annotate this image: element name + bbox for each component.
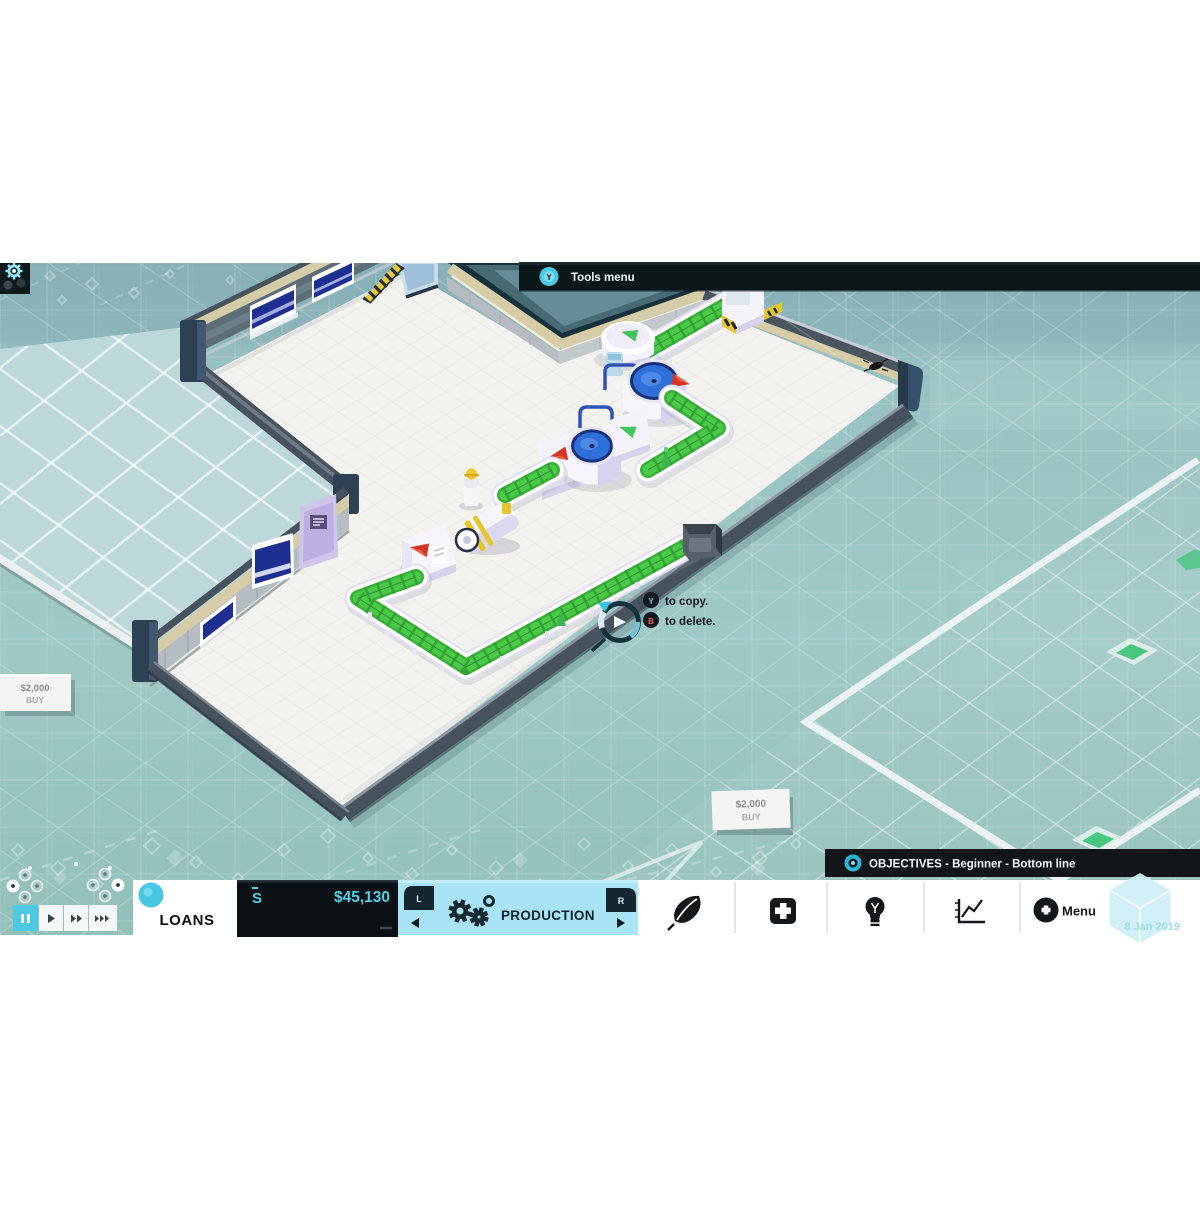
svg-text:to delete.: to delete. [665, 616, 715, 628]
svg-text:R: R [618, 896, 625, 906]
svg-text:Tools menu: Tools menu [571, 272, 635, 284]
svg-text:$2,000: $2,000 [20, 683, 49, 694]
svg-text:BUY: BUY [742, 812, 761, 823]
svg-text:LOANS: LOANS [160, 912, 215, 929]
svg-text:PRODUCTION: PRODUCTION [501, 908, 595, 923]
svg-text:Y: Y [546, 273, 552, 282]
svg-text:to copy.: to copy. [665, 596, 708, 608]
svg-text:$2,000: $2,000 [735, 798, 766, 810]
svg-text:L: L [416, 894, 422, 904]
svg-text:OBJECTIVES - Beginner - Bottom: OBJECTIVES - Beginner - Bottom line [869, 859, 1075, 871]
svg-text:BUY: BUY [26, 695, 44, 705]
svg-text:8 Jan 2019: 8 Jan 2019 [1124, 921, 1180, 933]
svg-text:Y: Y [648, 597, 654, 606]
svg-text:Menu: Menu [1062, 904, 1096, 919]
svg-text:S: S [252, 890, 262, 907]
svg-text:$45,130: $45,130 [334, 889, 390, 906]
svg-text:B: B [648, 617, 654, 626]
